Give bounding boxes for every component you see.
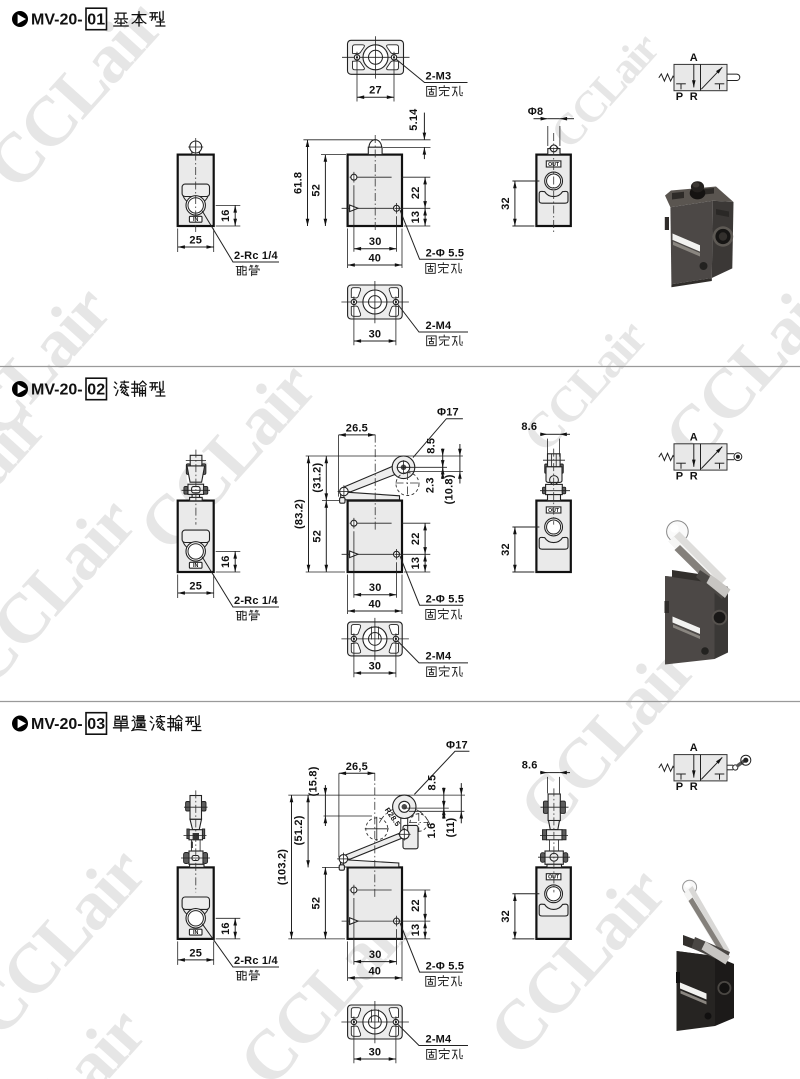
svg-text:40: 40	[368, 599, 381, 611]
svg-text:MV-20-: MV-20-	[31, 382, 83, 399]
svg-text:2-Φ 5.5: 2-Φ 5.5	[426, 247, 465, 259]
svg-text:25: 25	[189, 581, 202, 593]
svg-text:R: R	[690, 781, 698, 793]
svg-text:P: P	[676, 91, 684, 103]
svg-text:52: 52	[311, 530, 323, 543]
svg-text:A: A	[690, 742, 698, 754]
svg-text:22: 22	[410, 532, 422, 545]
svg-text:30: 30	[369, 949, 382, 961]
svg-text:IN: IN	[193, 563, 198, 569]
svg-text:2-Rc 1/4: 2-Rc 1/4	[234, 595, 278, 607]
svg-text:32: 32	[500, 197, 512, 210]
svg-text:01: 01	[87, 12, 105, 29]
svg-text:30: 30	[369, 236, 382, 248]
svg-text:2-Φ 5.5: 2-Φ 5.5	[426, 593, 465, 605]
svg-text:26,5: 26,5	[346, 761, 368, 773]
svg-text:16: 16	[220, 922, 232, 935]
svg-text:8.6: 8.6	[521, 421, 537, 433]
svg-text:MV-20-: MV-20-	[31, 12, 83, 29]
svg-text:32: 32	[500, 543, 512, 556]
svg-text:25: 25	[189, 947, 202, 959]
svg-text:8.5: 8.5	[426, 775, 438, 791]
svg-text:(83.2): (83.2)	[294, 499, 306, 529]
svg-text:16: 16	[220, 209, 232, 222]
svg-text:25: 25	[189, 235, 202, 247]
svg-text:2-M4: 2-M4	[426, 320, 453, 332]
svg-text:Φ8: Φ8	[528, 106, 544, 118]
svg-text:2.3: 2.3	[425, 477, 437, 493]
svg-text:(103.2): (103.2)	[277, 849, 289, 885]
svg-text:30: 30	[369, 329, 382, 341]
svg-text:52: 52	[310, 897, 322, 910]
svg-text:2-Rc 1/4: 2-Rc 1/4	[234, 955, 278, 967]
svg-text:52: 52	[310, 184, 322, 197]
svg-text:30: 30	[369, 1047, 382, 1059]
svg-text:(51.2): (51.2)	[293, 815, 305, 845]
svg-text:R: R	[690, 470, 698, 482]
svg-text:2-M4: 2-M4	[426, 651, 453, 663]
svg-text:8.6: 8.6	[522, 759, 538, 771]
svg-text:(31.2): (31.2)	[311, 462, 323, 492]
svg-text:IN: IN	[193, 930, 198, 936]
svg-text:R: R	[690, 91, 698, 103]
svg-text:40: 40	[368, 253, 381, 265]
svg-text:A: A	[690, 431, 698, 443]
svg-text:61.8: 61.8	[293, 172, 305, 194]
svg-text:27: 27	[369, 85, 382, 97]
svg-text:(11): (11)	[445, 817, 457, 837]
svg-text:MV-20-: MV-20-	[31, 716, 83, 733]
svg-text:P: P	[676, 781, 684, 793]
svg-text:13: 13	[410, 211, 422, 224]
svg-text:Φ17: Φ17	[437, 407, 459, 419]
svg-text:30: 30	[369, 582, 382, 594]
svg-text:2-Rc 1/4: 2-Rc 1/4	[234, 250, 278, 262]
svg-text:A: A	[690, 52, 698, 64]
svg-text:P: P	[676, 470, 684, 482]
svg-text:(10.8): (10.8)	[444, 474, 456, 504]
svg-text:Φ17: Φ17	[446, 740, 468, 752]
svg-text:2-M3: 2-M3	[426, 70, 452, 82]
svg-text:30: 30	[369, 661, 382, 673]
svg-text:13: 13	[410, 924, 422, 937]
svg-text:32: 32	[500, 910, 512, 923]
svg-text:22: 22	[410, 899, 422, 912]
svg-text:8.5: 8.5	[425, 438, 437, 454]
svg-text:26.5: 26.5	[346, 422, 368, 434]
svg-text:16: 16	[220, 555, 232, 568]
svg-text:03: 03	[87, 716, 105, 733]
svg-text:5.14: 5.14	[408, 108, 420, 131]
svg-text:2-Φ 5.5: 2-Φ 5.5	[426, 960, 465, 972]
svg-text:1.6: 1.6	[426, 823, 438, 839]
svg-text:02: 02	[87, 382, 105, 399]
svg-text:22: 22	[410, 186, 422, 199]
svg-text:13: 13	[410, 557, 422, 570]
svg-text:(15.8): (15.8)	[308, 766, 320, 796]
svg-text:40: 40	[368, 965, 381, 977]
svg-text:2-M4: 2-M4	[426, 1033, 453, 1045]
